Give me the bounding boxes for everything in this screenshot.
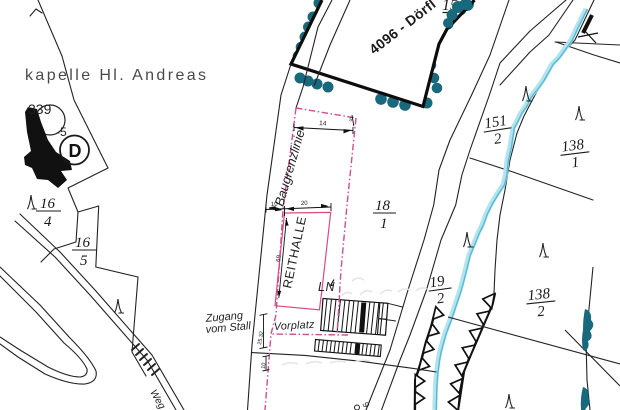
svg-text:20: 20	[301, 201, 309, 207]
svg-text:18: 18	[375, 198, 391, 214]
svg-text:1: 1	[380, 216, 388, 232]
svg-text:D: D	[69, 141, 82, 161]
svg-text:16: 16	[75, 235, 91, 251]
svg-text:kapelle Hl. Andreas: kapelle Hl. Andreas	[25, 67, 208, 84]
svg-text:10: 10	[271, 202, 279, 208]
svg-text:16: 16	[40, 196, 56, 212]
svg-text:339: 339	[28, 101, 52, 117]
svg-text:-5: -5	[56, 125, 67, 139]
svg-text:10: 10	[261, 362, 268, 369]
svg-text:4: 4	[44, 214, 52, 230]
svg-text:Vorplatz: Vorplatz	[274, 319, 316, 333]
svg-text:5: 5	[80, 253, 88, 269]
svg-text:69: 69	[276, 254, 283, 262]
svg-text:14: 14	[319, 120, 327, 128]
